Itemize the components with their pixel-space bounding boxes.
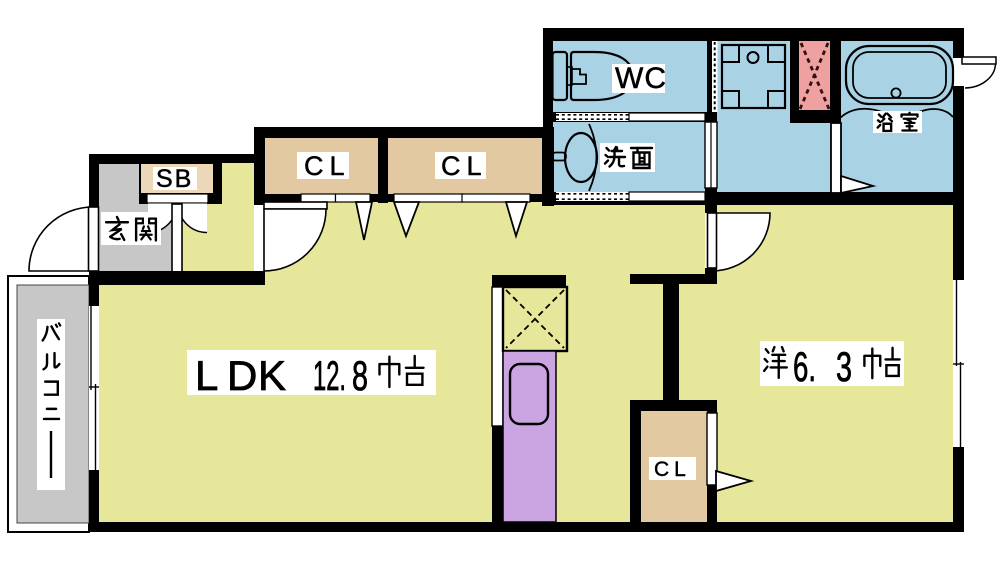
svg-text:12.: 12.: [313, 352, 346, 399]
svg-text:3: 3: [836, 343, 852, 390]
svg-text:D: D: [227, 352, 257, 399]
svg-text:WC: WC: [615, 62, 667, 95]
svg-text:CL: CL: [304, 151, 351, 181]
svg-text:CL: CL: [441, 151, 488, 181]
svg-text:CL: CL: [654, 458, 691, 481]
svg-text:8: 8: [352, 352, 368, 399]
svg-text:L: L: [195, 352, 218, 399]
svg-text:K: K: [258, 352, 286, 399]
svg-text:6.: 6.: [793, 343, 816, 390]
svg-text:SB: SB: [156, 165, 193, 193]
